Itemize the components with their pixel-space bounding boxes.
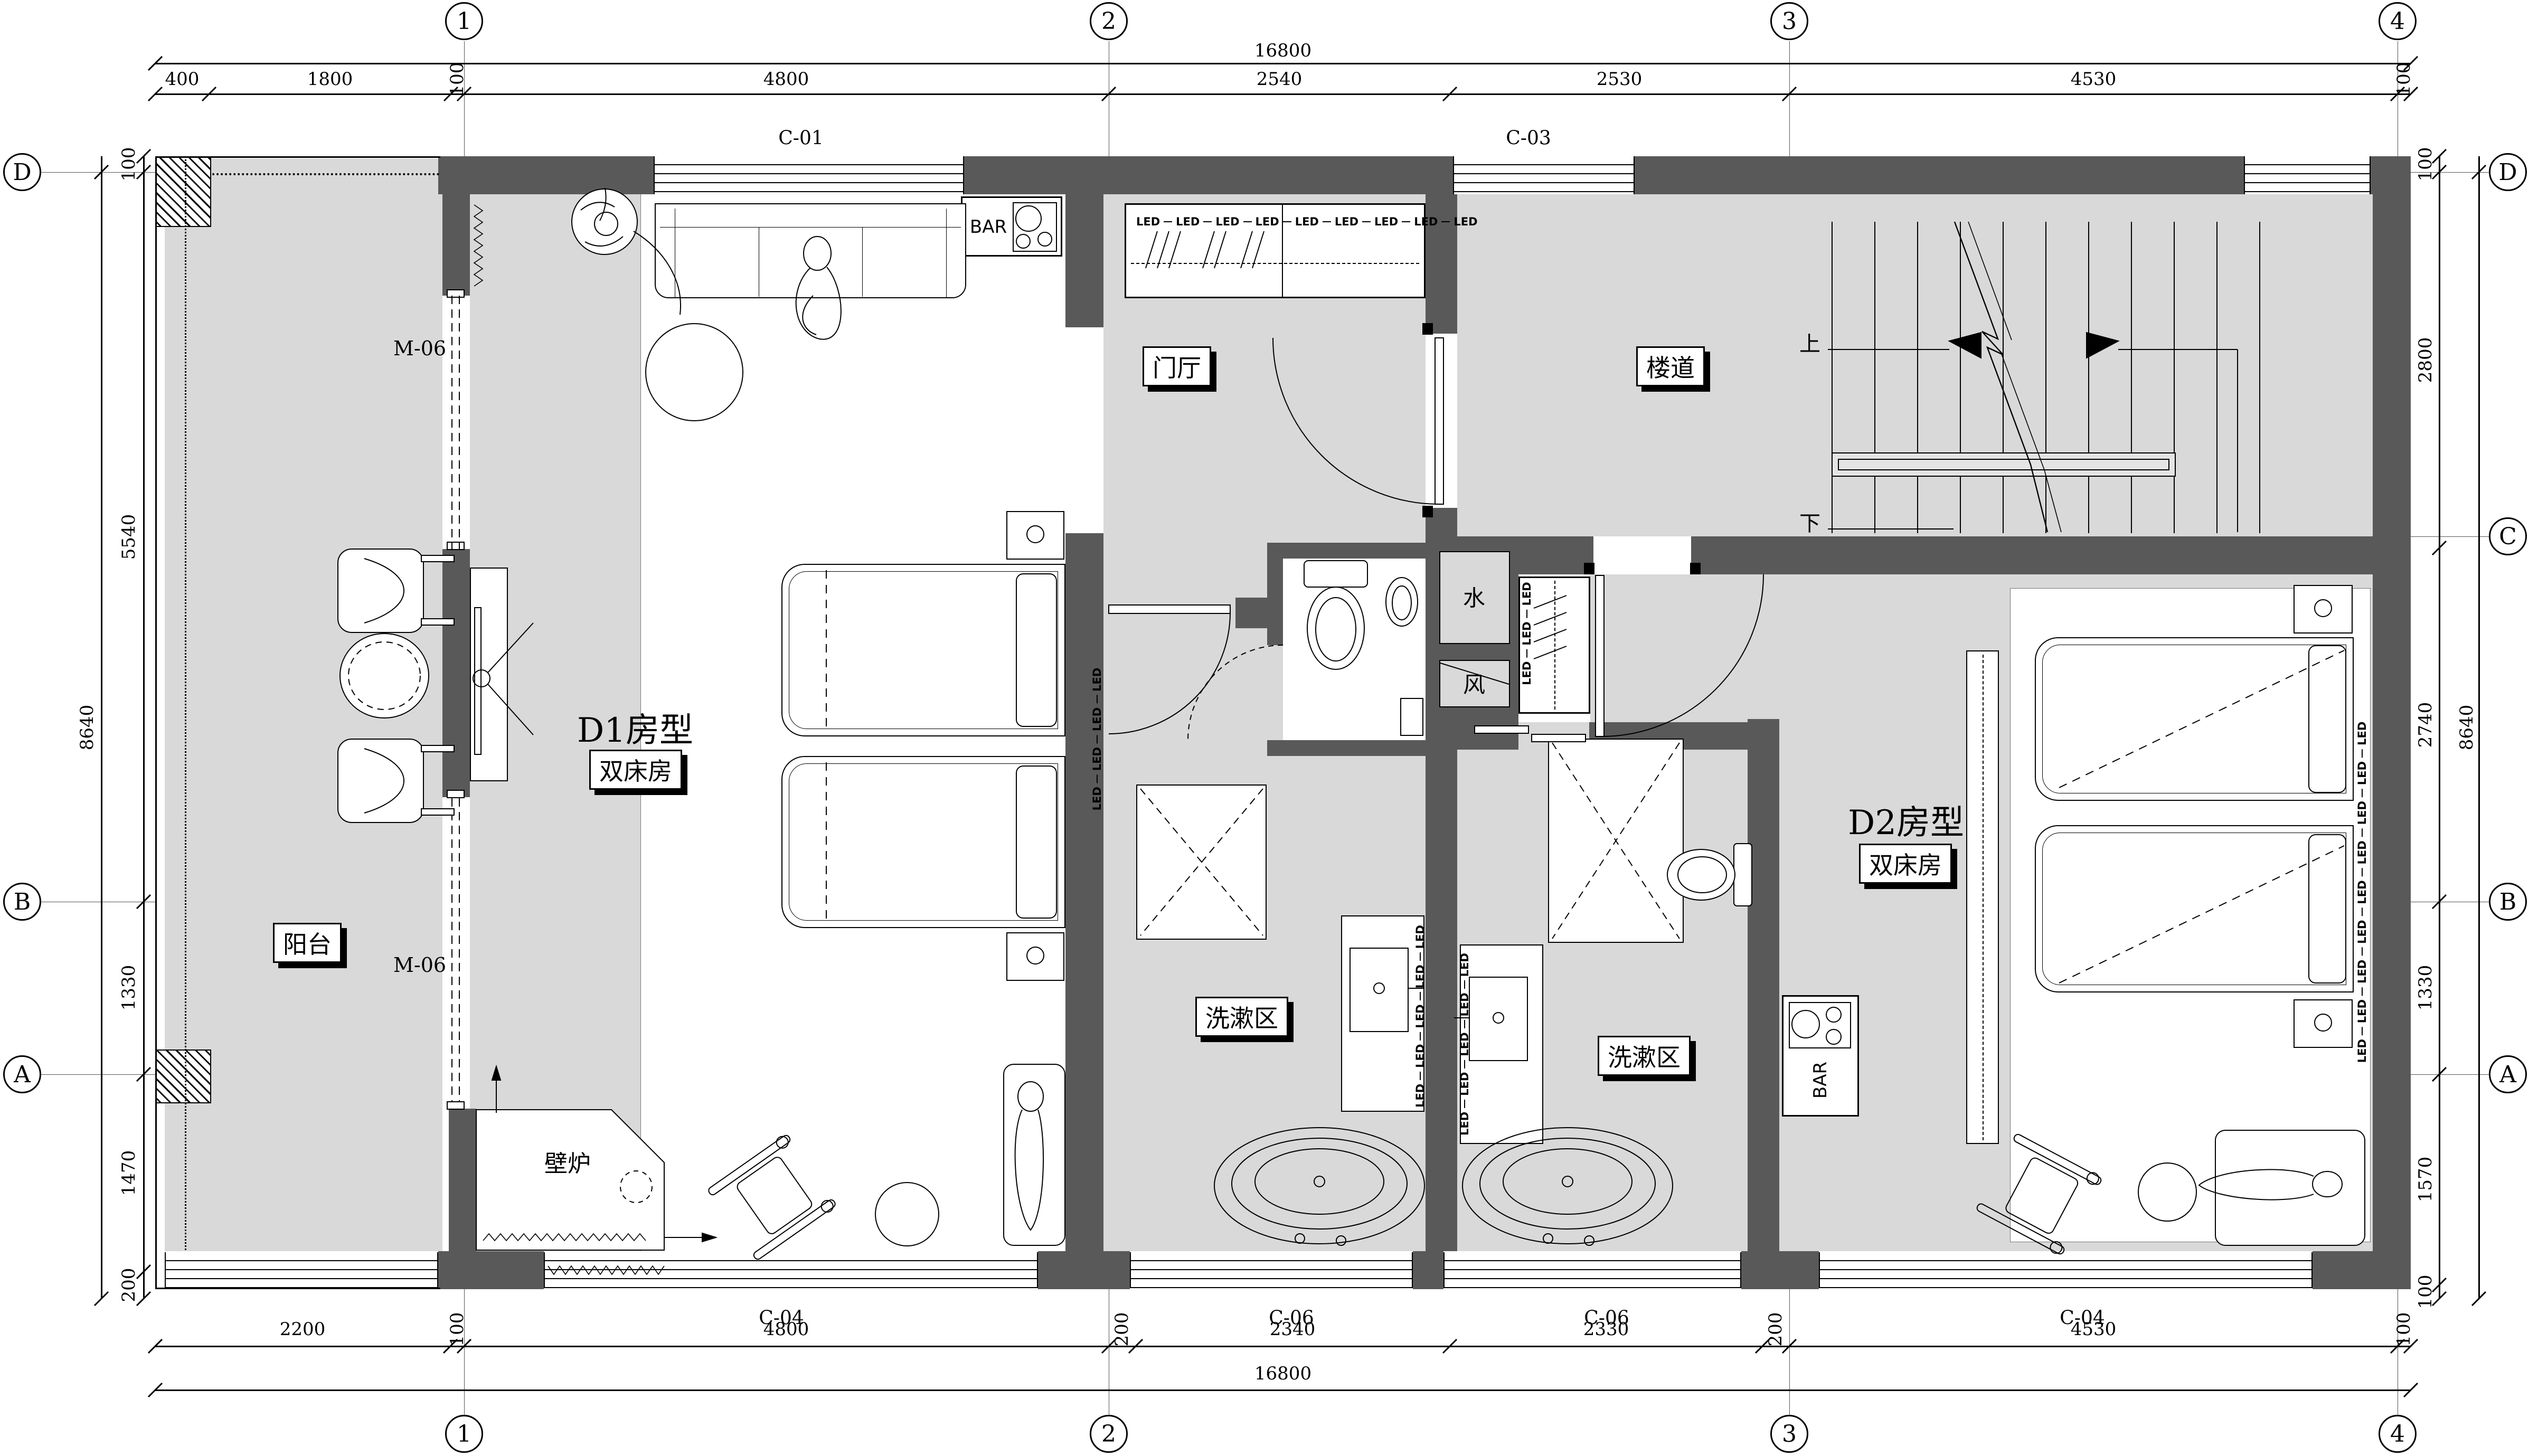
nightstand-lamp-1 — [1027, 526, 1044, 543]
label-stair-up: 上 — [1799, 327, 1820, 357]
grid-bubble-4-top: 4 — [2379, 2, 2417, 40]
grid-bubble-A-right: A — [2489, 1055, 2527, 1093]
dim-top-1: 1800 — [307, 69, 353, 90]
balcony-chair-1 — [338, 549, 454, 632]
dim-bottom-total: 16800 — [1254, 1363, 1311, 1384]
dim-top-0: 400 — [165, 69, 200, 90]
tv-projection — [473, 623, 533, 735]
label-wash-d1: 洗漱区 — [1195, 997, 1288, 1037]
tag-c06-right: C-06 — [1584, 1308, 1629, 1329]
wheelchair-d2 — [1975, 1132, 2103, 1256]
led-strip-d2-wall: LEDLEDLEDLEDLEDLEDLEDLEDLED — [2356, 722, 2368, 1063]
grid-bubble-B-right: B — [2489, 883, 2527, 921]
tag-m06-upper: M-06 — [393, 337, 446, 360]
grid-bubble-3-bottom: 3 — [1770, 1415, 1808, 1453]
table-d1 — [646, 324, 743, 421]
led-strip-wash-d1: LEDLEDLEDLED — [1091, 668, 1103, 811]
grid-bubble-2-top: 2 — [1090, 2, 1128, 40]
dim-right-3: 1330 — [2415, 965, 2436, 1011]
label-bar-d1: BAR — [970, 216, 1007, 238]
dim-bottom-1: 100 — [447, 1312, 468, 1347]
label-balcony: 阳台 — [273, 923, 342, 963]
grid-bubble-C-right: C — [2489, 517, 2527, 555]
wardrobe-hangers — [1146, 231, 1567, 659]
nightstand-lamp-3 — [2315, 600, 2332, 617]
led-strip-closet-d2: LEDLEDLED — [1521, 582, 1533, 685]
toilet-d2 — [1667, 844, 1752, 906]
tag-c04-right: C-04 — [2060, 1308, 2105, 1329]
label-d2-name: D2房型 — [1848, 796, 1964, 844]
stool-d2 — [2138, 1163, 2196, 1221]
dim-left-2: 1330 — [118, 965, 139, 1011]
tag-c01: C-01 — [778, 128, 824, 149]
dimension-ticks — [95, 56, 2486, 1397]
grid-bubble-4-bottom: 4 — [2379, 1415, 2417, 1453]
nightstand-lamp-4 — [2315, 1014, 2332, 1031]
grid-bubble-3-top: 3 — [1770, 2, 1808, 40]
led-strip-vanity-d1: LEDLEDLEDLEDLED — [1414, 925, 1427, 1108]
label-d2-type: 双床房 — [1859, 844, 1952, 884]
person-sofa-d1 — [796, 237, 841, 339]
tag-c04-left: C-04 — [759, 1308, 804, 1329]
person-chaise-d1 — [1015, 1082, 1043, 1230]
dim-left-3: 1470 — [118, 1150, 139, 1196]
dim-left-4: 200 — [118, 1268, 139, 1302]
dim-top-3: 4800 — [763, 69, 809, 90]
door-swings — [452, 296, 1763, 1101]
led-strip-vanity-d2: LEDLEDLEDLEDLED — [1458, 953, 1471, 1136]
dim-right-total: 8640 — [2456, 705, 2477, 751]
grid-bubble-1-top: 1 — [445, 2, 483, 40]
grid-bubble-2-bottom: 2 — [1090, 1415, 1128, 1453]
grid-bubble-B-left: B — [3, 883, 41, 921]
label-stair-down: 下 — [1799, 506, 1820, 537]
label-shaft-water: 水 — [1463, 581, 1485, 613]
shower-d2-x — [1552, 743, 1679, 939]
label-wash-d2: 洗漱区 — [1598, 1036, 1691, 1076]
bathtub-d2 — [1462, 1128, 1673, 1245]
tag-m06-lower: M-06 — [393, 953, 446, 977]
grid-bubble-D-right: D — [2489, 153, 2527, 191]
label-fireplace: 壁炉 — [544, 1145, 591, 1178]
dim-top-total: 16800 — [1254, 40, 1311, 61]
fireplace — [476, 1066, 716, 1250]
dim-right-4: 1570 — [2415, 1157, 2436, 1203]
wheelchair-d1 — [706, 1133, 837, 1262]
dim-top-7: 100 — [2393, 62, 2414, 97]
label-shaft-air: 风 — [1463, 667, 1485, 699]
dim-right-5: 100 — [2415, 1275, 2436, 1309]
dim-left-1: 5540 — [118, 514, 139, 560]
stairs — [1828, 222, 2260, 533]
floor-plan-canvas: 1 2 3 4 1 2 3 4 D B A D C B A 16800 400 … — [0, 0, 2529, 1456]
dim-bottom-3: 200 — [1111, 1312, 1133, 1347]
label-foyer: 门厅 — [1143, 346, 1211, 386]
grid-bubble-1-bottom: 1 — [445, 1415, 483, 1453]
dim-right-0: 100 — [2415, 147, 2436, 182]
label-bar-d2: BAR — [1810, 1062, 1831, 1099]
bed-d2-folds — [2059, 650, 2344, 983]
dim-top-6: 4530 — [2071, 69, 2117, 90]
led-strip-wardrobe: LEDLEDLEDLEDLEDLEDLEDLEDLED — [1136, 215, 1478, 228]
label-d1-type: 双床房 — [589, 750, 682, 790]
label-d1-name: D1房型 — [577, 703, 693, 752]
balcony-table — [340, 634, 429, 718]
dim-right-1: 2800 — [2415, 337, 2436, 383]
plant-d1 — [572, 188, 681, 315]
bathtub-d1 — [1214, 1128, 1424, 1245]
dim-bottom-0: 2200 — [280, 1319, 326, 1340]
stool-d1 — [875, 1183, 939, 1246]
dim-bottom-6: 200 — [1765, 1312, 1786, 1347]
dim-left-total: 8640 — [77, 705, 98, 751]
balcony-chair-2 — [338, 739, 454, 822]
tag-c03: C-03 — [1506, 128, 1551, 149]
dim-right-2: 2740 — [2415, 702, 2436, 748]
dim-top-5: 2530 — [1597, 69, 1643, 90]
grid-bubble-D-left: D — [3, 153, 41, 191]
cooktop-burners — [1016, 206, 1841, 1044]
grid-bubble-A-left: A — [3, 1055, 41, 1093]
tag-c06-left: C-06 — [1269, 1308, 1314, 1329]
label-stair-hall: 楼道 — [1636, 346, 1705, 386]
dim-left-0: 100 — [118, 147, 139, 182]
dim-bottom-8: 100 — [2393, 1312, 2414, 1347]
dim-top-2: 100 — [447, 62, 468, 97]
toilet-d1 — [1304, 561, 1418, 669]
shower-d1-x — [1140, 789, 1263, 935]
nightstand-lamp-2 — [1027, 947, 1044, 964]
basin-faucets — [1374, 983, 1504, 1023]
person-chaise-d2 — [2199, 1169, 2342, 1199]
dim-top-4: 2540 — [1257, 69, 1303, 90]
